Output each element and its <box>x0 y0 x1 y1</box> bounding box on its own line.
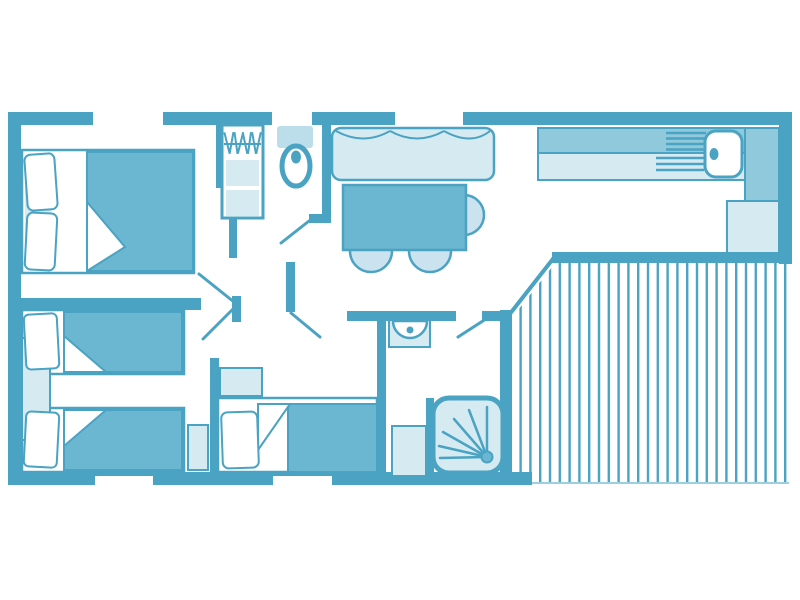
wardrobe-shelf <box>226 190 259 216</box>
kitchen-column-upper <box>745 128 779 201</box>
bed-blanket <box>288 404 377 472</box>
wall-hall-stub <box>286 262 295 312</box>
sofa-icon <box>332 128 494 180</box>
pillow <box>24 411 60 468</box>
wall-wc-right <box>322 112 331 216</box>
shower-drain <box>482 452 493 463</box>
window-bottom-2 <box>273 476 332 485</box>
wall-right <box>779 112 792 264</box>
window-bottom-1 <box>95 476 153 485</box>
wardrobe-shelf <box>226 160 259 186</box>
wall-master-bottom <box>17 298 201 310</box>
wc <box>277 126 313 186</box>
pillow <box>24 153 58 211</box>
pillow <box>25 212 58 270</box>
floor-plan <box>0 0 800 600</box>
storage-cabinet-icon <box>392 426 426 476</box>
washbasin-tap <box>407 327 414 334</box>
storage-cabinet-icon <box>188 425 208 470</box>
wardrobe <box>222 125 263 218</box>
toilet-flush <box>291 151 301 164</box>
terrace-deck <box>514 262 789 483</box>
master-bedroom <box>22 150 194 273</box>
pillow <box>221 411 259 468</box>
deck-boards-icon <box>514 262 789 483</box>
window-top-1 <box>93 112 163 125</box>
dining-table-icon <box>343 185 466 250</box>
wall-wc-foot <box>309 214 331 223</box>
window-top-2 <box>272 112 312 125</box>
window-top-3 <box>395 112 463 125</box>
wall-wardrobe-stub <box>229 219 237 258</box>
sink-drain <box>710 148 719 160</box>
kitchen-column-lower <box>727 201 779 253</box>
pillow <box>24 313 60 370</box>
shelf-icon <box>220 368 262 396</box>
wall-bathroom-left <box>377 311 386 474</box>
